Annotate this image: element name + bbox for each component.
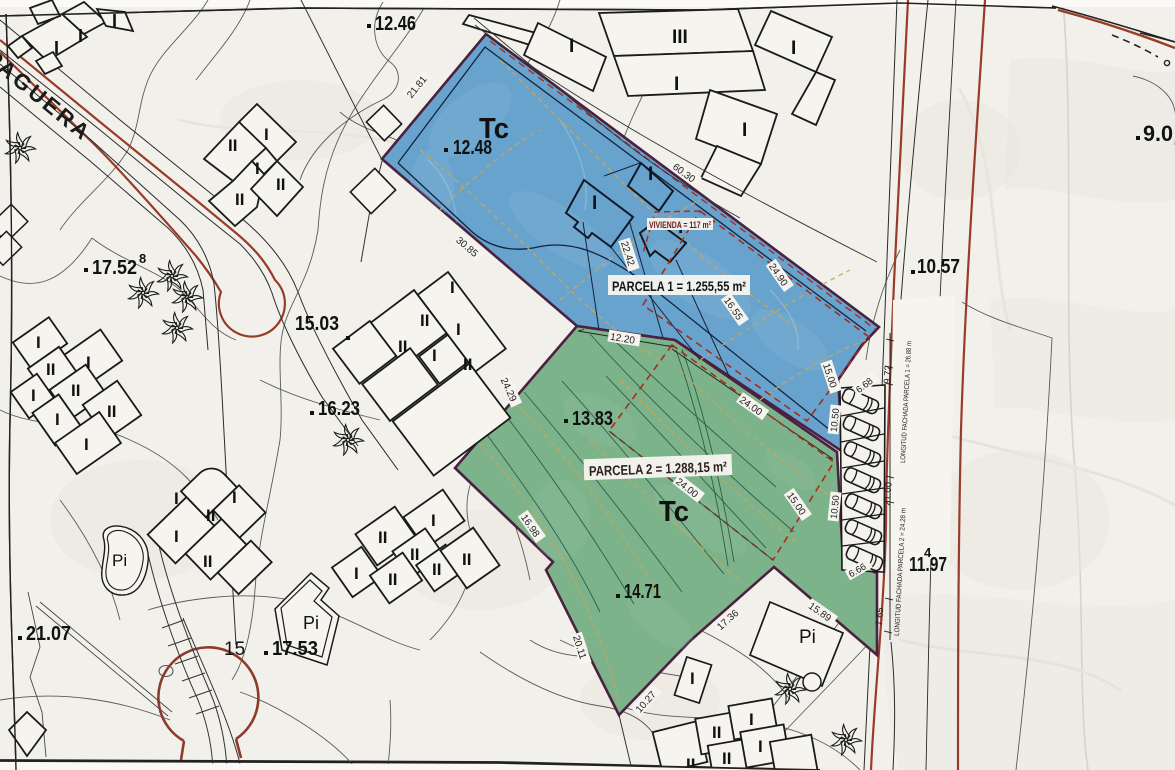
- svg-text:4: 4: [924, 545, 932, 560]
- svg-text:II: II: [432, 560, 441, 579]
- svg-text:16.23: 16.23: [318, 398, 360, 420]
- svg-text:17.52: 17.52: [92, 257, 137, 279]
- svg-text:I: I: [232, 488, 237, 507]
- svg-text:9.72: 9.72: [882, 365, 894, 384]
- svg-text:I: I: [86, 353, 91, 372]
- svg-text:13.83: 13.83: [572, 408, 613, 430]
- svg-text:Pi: Pi: [799, 627, 816, 648]
- svg-text:8: 8: [139, 251, 146, 266]
- svg-text:I: I: [174, 489, 179, 508]
- svg-text:I: I: [758, 737, 763, 756]
- svg-text:II: II: [420, 311, 429, 330]
- svg-text:II: II: [378, 528, 387, 547]
- svg-text:15.03: 15.03: [295, 313, 339, 335]
- svg-text:II: II: [463, 355, 472, 374]
- svg-text:I: I: [690, 669, 695, 688]
- svg-text:II: II: [107, 402, 116, 421]
- svg-text:Tc: Tc: [659, 496, 689, 528]
- svg-text:I: I: [450, 278, 455, 297]
- svg-text:II: II: [388, 570, 397, 589]
- svg-text:21.07: 21.07: [26, 623, 71, 645]
- svg-text:Pi: Pi: [112, 551, 127, 570]
- svg-text:I: I: [255, 159, 260, 178]
- svg-text:I: I: [569, 36, 574, 57]
- svg-text:II: II: [712, 723, 721, 742]
- svg-text:II: II: [235, 190, 244, 209]
- svg-text:I: I: [84, 435, 89, 454]
- svg-text:I: I: [456, 320, 461, 339]
- svg-text:I: I: [431, 511, 436, 530]
- svg-text:I: I: [174, 527, 179, 546]
- svg-text:II: II: [228, 136, 237, 155]
- svg-text:II: II: [71, 381, 80, 400]
- svg-text:10.57: 10.57: [917, 256, 960, 278]
- svg-text:VIVIENDA = 117 m²: VIVIENDA = 117 m²: [649, 220, 711, 231]
- svg-text:I: I: [55, 410, 60, 429]
- svg-text:I: I: [791, 38, 796, 59]
- svg-text:I: I: [31, 386, 36, 405]
- svg-text:I: I: [592, 193, 597, 214]
- svg-text:I: I: [742, 120, 747, 141]
- svg-text:Tc: Tc: [479, 113, 509, 145]
- svg-text:II: II: [722, 749, 731, 768]
- svg-text:I: I: [78, 26, 83, 46]
- svg-text:9.0: 9.0: [1143, 121, 1173, 146]
- svg-text:I: I: [648, 164, 653, 185]
- svg-text:II: II: [276, 175, 285, 194]
- svg-text:I: I: [112, 11, 117, 31]
- svg-text:I: I: [36, 333, 41, 352]
- svg-text:Pi: Pi: [303, 613, 319, 633]
- svg-text:21.00: 21.00: [882, 482, 895, 506]
- svg-text:I: I: [354, 564, 359, 583]
- svg-text:II: II: [410, 545, 419, 564]
- svg-text:II: II: [203, 552, 212, 571]
- svg-text:I: I: [264, 125, 269, 144]
- svg-text:12.46: 12.46: [375, 13, 416, 35]
- svg-text:7.65: 7.65: [874, 607, 886, 626]
- svg-text:I: I: [432, 346, 437, 365]
- svg-text:II: II: [398, 337, 407, 356]
- svg-text:II: II: [206, 506, 215, 525]
- svg-text:I: I: [54, 38, 59, 58]
- svg-text:I: I: [749, 710, 754, 729]
- svg-text:II: II: [462, 550, 471, 569]
- svg-text:I: I: [674, 74, 679, 95]
- svg-text:III: III: [672, 27, 688, 48]
- svg-text:II: II: [46, 360, 55, 379]
- svg-text:PARCELA 1 = 1.255,55 m²: PARCELA 1 = 1.255,55 m²: [612, 278, 746, 294]
- svg-text:17.53: 17.53: [272, 638, 318, 660]
- svg-text:14.71: 14.71: [624, 581, 661, 603]
- svg-text:15: 15: [224, 639, 245, 660]
